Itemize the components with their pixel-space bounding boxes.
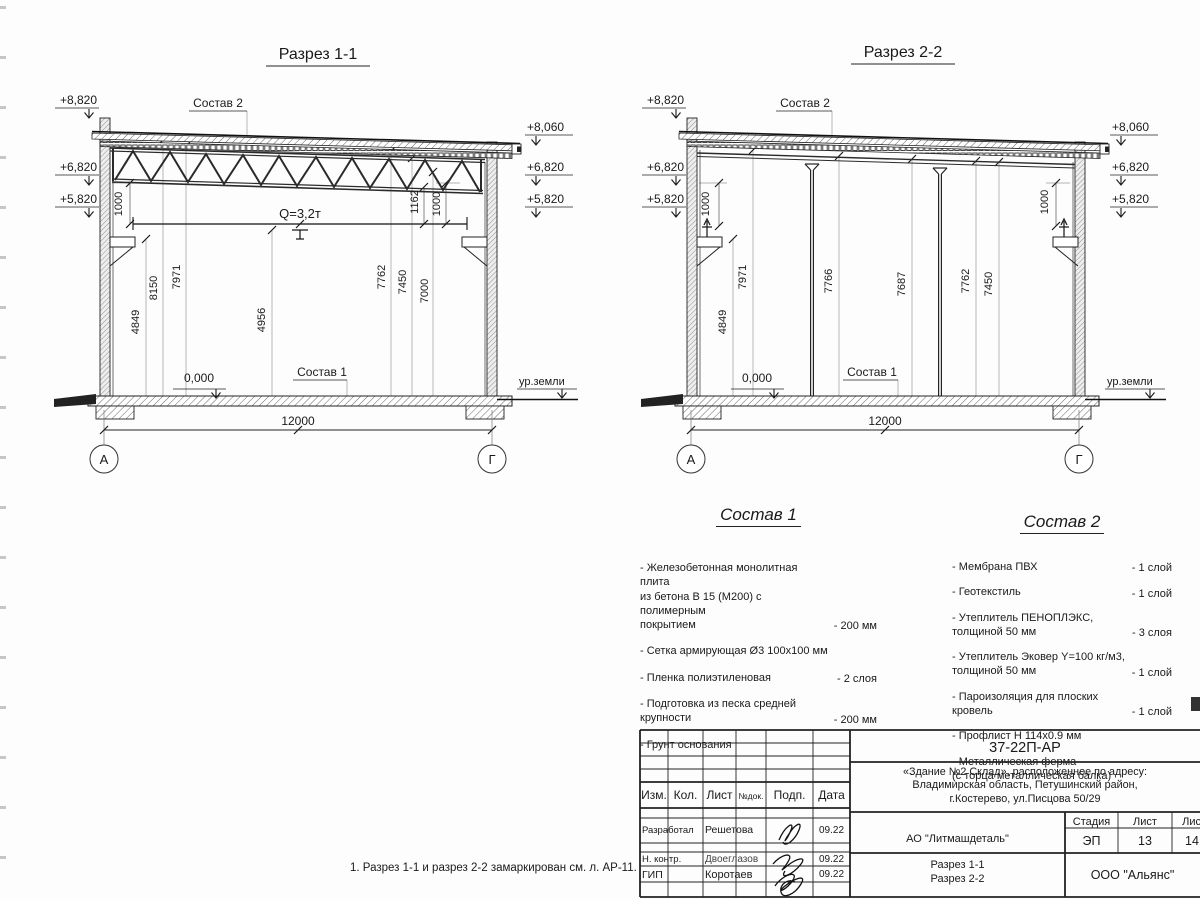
axis-g-label: Г — [1075, 452, 1082, 467]
vertical-dimensions: 1000 4849 8150 7971 4956 7762 7450 7000 … — [113, 190, 443, 334]
svg-text:+8,820: +8,820 — [647, 93, 684, 107]
svg-text:0,000: 0,000 — [184, 371, 214, 385]
svg-text:4849: 4849 — [130, 310, 142, 334]
span-dimension: 12000 — [687, 410, 1083, 445]
crane-consoles — [697, 219, 1078, 266]
roof-composition-label: Состав 2 — [776, 96, 832, 111]
list-item: - Пароизоляция для плоских кровель- 1 сл… — [952, 690, 1172, 719]
section-title: Разрез 2-2 — [864, 44, 943, 61]
row-role: Н. контр. — [642, 854, 704, 866]
svg-text:8150: 8150 — [148, 276, 160, 300]
axis-g-label: Г — [488, 452, 495, 467]
svg-text:7450: 7450 — [983, 272, 995, 296]
svg-text:+5,820: +5,820 — [527, 192, 564, 206]
svg-text:12000: 12000 — [281, 414, 315, 428]
svg-text:7766: 7766 — [823, 269, 835, 293]
stage-value: ЭП — [1065, 834, 1118, 850]
svg-text:Состав 2: Состав 2 — [780, 96, 830, 110]
drawing-note: 1. Разрез 1-1 и разрез 2-2 замаркирован … — [350, 862, 642, 874]
svg-text:7971: 7971 — [737, 265, 749, 289]
left-wall — [687, 118, 697, 408]
composition-list-1: Состав 1 - Железобетонная монолитная пли… — [640, 505, 877, 764]
svg-text:7971: 7971 — [171, 265, 183, 289]
right-wall — [1075, 142, 1085, 408]
list-item: - Пленка полиэтиленовая- 2 слоя — [640, 671, 877, 685]
elevation-marks-left: +8,820 +6,820 +5,820 — [642, 93, 686, 217]
row-date: 09.22 — [813, 825, 850, 838]
svg-text:0,000: 0,000 — [742, 371, 772, 385]
row-name: Двоеглазов — [705, 854, 767, 867]
sheets-label: Листов — [1172, 816, 1200, 830]
svg-text:1000: 1000 — [431, 192, 443, 216]
crane-capacity-label: Q=3,2т — [279, 206, 321, 221]
svg-text:7450: 7450 — [397, 270, 409, 294]
left-wall — [100, 118, 110, 408]
sections-drawing: Разрез 1-1 — [0, 0, 1200, 500]
dimension-ticks — [715, 146, 1060, 243]
svg-text:7000: 7000 — [419, 279, 431, 303]
col-izm: Изм. — [640, 788, 668, 803]
svg-text:4956: 4956 — [256, 308, 268, 332]
svg-text:4849: 4849 — [717, 310, 729, 334]
floor-composition-label: Состав 1 — [293, 365, 347, 380]
rail-anchor-icon — [1059, 219, 1069, 237]
section-2-2: Разрез 2-2 — [641, 44, 1166, 473]
svg-text:Состав 1: Состав 1 — [847, 365, 897, 379]
sheets-total: 14 — [1172, 834, 1200, 850]
elevation-marks-left: +8,820 +6,820 +5,820 — [55, 93, 99, 217]
svg-text:+6,820: +6,820 — [647, 160, 684, 174]
row-date: 09.22 — [813, 854, 850, 867]
axis-markers: А Г — [677, 445, 1093, 473]
svg-text:+6,820: +6,820 — [527, 160, 564, 174]
svg-text:Состав 1: Состав 1 — [297, 365, 347, 379]
svg-text:7762: 7762 — [960, 269, 972, 293]
svg-text:1162: 1162 — [409, 190, 421, 214]
row-role: Разработал — [642, 825, 704, 837]
svg-text:+8,820: +8,820 — [60, 93, 97, 107]
svg-text:1000: 1000 — [1039, 190, 1051, 214]
svg-text:+5,820: +5,820 — [60, 192, 97, 206]
company-name: ООО "Альянс" — [1065, 868, 1200, 884]
span-dimension: 12000 — [100, 410, 496, 445]
svg-text:ур.земли: ур.земли — [1107, 376, 1153, 388]
crane-hook-icon — [292, 230, 308, 239]
col-kol: Кол. — [668, 788, 703, 803]
document-code: 37-22П-АР — [850, 739, 1200, 757]
sheet-edge-mark — [1191, 697, 1200, 711]
list-item: - Сетка армирующая Ø3 100х100 мм — [640, 644, 877, 658]
list-item: - Железобетонная монолитная плита из бет… — [640, 561, 877, 632]
svg-text:1000: 1000 — [113, 192, 125, 216]
signature-scribbles — [773, 824, 803, 895]
rail-anchor-icon — [702, 219, 712, 237]
zero-level-mark: 0,000 — [173, 371, 226, 398]
svg-text:1000: 1000 — [700, 192, 712, 216]
svg-text:12000: 12000 — [868, 414, 902, 428]
svg-text:ур.земли: ур.земли — [519, 376, 565, 388]
svg-text:+8,060: +8,060 — [1112, 120, 1149, 134]
list-item: - Геотекстиль- 1 слой — [952, 585, 1172, 599]
list-item: - Утеплитель ПЕНОПЛЭКС, толщиной 50 мм- … — [952, 611, 1172, 640]
floor-slab — [641, 394, 1166, 419]
composition-1-title: Состав 1 — [640, 505, 877, 525]
section-title: Разрез 1-1 — [279, 46, 358, 63]
ground-level-mark: ур.земли — [517, 376, 577, 398]
svg-text:+6,820: +6,820 — [1112, 160, 1149, 174]
axis-a-label: А — [687, 452, 696, 467]
svg-text:+6,820: +6,820 — [60, 160, 97, 174]
axis-a-label: А — [100, 452, 109, 467]
section-1-1: Разрез 1-1 — [54, 46, 578, 473]
axis-markers: А Г — [90, 445, 506, 473]
list-item: - Утеплитель Эковер Y=100 кг/м3, толщино… — [952, 650, 1172, 679]
title-block: Изм. Кол. Лист №док. Подп. Дата Разработ… — [633, 728, 1200, 900]
sheet-title: Разрез 1-1 Разрез 2-2 — [850, 859, 1065, 887]
sheet-label: Лист — [1118, 816, 1172, 830]
composition-2-title: Состав 2 — [952, 512, 1172, 532]
zero-level-mark: 0,000 — [731, 371, 784, 398]
row-name: Решетова — [705, 824, 765, 837]
col-data: Дата — [813, 788, 850, 803]
crane-consoles — [110, 237, 487, 266]
stage-label: Стадия — [1065, 816, 1118, 830]
row-date: 09.22 — [813, 869, 850, 882]
col-podp: Подп. — [766, 788, 813, 803]
roof — [679, 132, 1110, 169]
client-name: АО "Литмашдеталь" — [850, 833, 1065, 847]
col-ndok: №док. — [736, 791, 766, 802]
roof-composition-label: Состав 2 — [189, 96, 247, 111]
elevation-marks-right: +8,060 +6,820 +5,820 — [525, 120, 573, 217]
floor-slab — [54, 394, 578, 419]
row-name: Коротаев — [705, 869, 767, 883]
ground-level-mark: ур.земли — [1105, 376, 1165, 398]
svg-text:+5,820: +5,820 — [1112, 192, 1149, 206]
svg-text:+5,820: +5,820 — [647, 192, 684, 206]
list-item: - Мембрана ПВХ- 1 слой — [952, 560, 1172, 574]
floor-composition-label: Состав 1 — [843, 365, 898, 380]
object-description: «Здание №2 Склад», расположенное по адре… — [860, 766, 1190, 806]
list-item: - Подготовка из песка средней крупности-… — [640, 697, 877, 726]
svg-text:Состав 2: Состав 2 — [193, 96, 243, 110]
row-role: ГИП — [642, 869, 704, 882]
elevation-marks-right: +8,060 +6,820 +5,820 — [1110, 120, 1158, 217]
sheet-number: 13 — [1118, 834, 1172, 850]
svg-text:7762: 7762 — [376, 265, 388, 289]
right-wall — [487, 142, 497, 408]
svg-text:7687: 7687 — [896, 272, 908, 296]
svg-text:+8,060: +8,060 — [527, 120, 564, 134]
col-list: Лист — [703, 788, 736, 803]
